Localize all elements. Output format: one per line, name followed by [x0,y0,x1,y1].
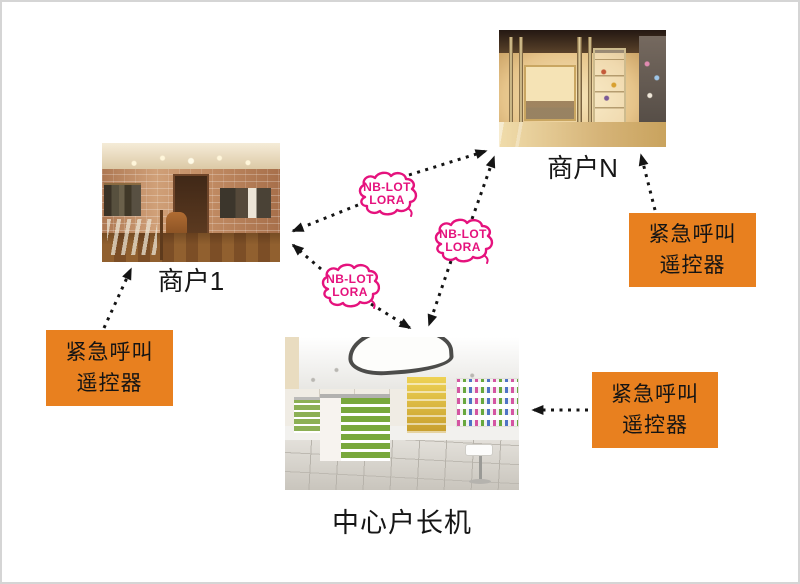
link-cloud1-to-store1 [293,205,358,231]
photo-detail-gold-panel [407,377,447,434]
remote-label-line1: 紧急呼叫 [66,337,154,369]
cloud-tail-icon [409,209,412,216]
cloud-tail-icon [372,301,375,308]
photo-detail-display-case [593,48,626,125]
cloud-text-line2: LORA [445,240,481,254]
cloud-text-line2: LORA [369,193,405,207]
photo-detail-side-wall [639,36,666,130]
storeN-photo [499,30,666,147]
cloud-nb-lot-lora-3: NB-LOT LORA [317,261,383,311]
store1-label: 商户1 [102,261,280,298]
central-label: 中心户长机 [285,501,519,540]
remote-label-line1: 紧急呼叫 [611,379,699,411]
photo-detail-glass-frame [519,37,523,131]
cloud-tail-icon [485,256,488,263]
remote-label-line1: 紧急呼叫 [649,219,737,251]
photo-detail-glass-frame [509,37,513,131]
remote-box-storeN: 紧急呼叫 遥控器 [629,213,756,287]
photo-detail-gondola [294,397,320,434]
photo-detail-clothes-rack [220,188,272,218]
cloud-text-line1: NB-LOT [439,227,487,241]
remote-label-line2: 遥控器 [660,250,726,282]
photo-detail-stool [469,479,491,484]
storeN-label: 商户N [499,148,666,185]
photo-detail-glass-frame [588,37,592,131]
cloud-nb-lot-lora-1: NB-LOT LORA [354,169,420,219]
link-cloud2-to-central [429,261,451,325]
remote-label-line2: 遥控器 [622,410,688,442]
remote-box-store1: 紧急呼叫 遥控器 [46,330,173,406]
central-photo [285,337,519,490]
cloud-text-line1: NB-LOT [363,180,411,194]
photo-detail-stool [479,455,482,481]
photo-detail-glass-frame [577,37,581,131]
link-cloud1-to-storeN [409,151,486,175]
link-cloud2-to-storeN [472,157,494,219]
photo-detail-glossy-floor [499,122,666,147]
photo-detail-shoes [107,219,157,255]
cloud-nb-lot-lora-2: NB-LOT LORA [430,216,496,266]
photo-detail-chair [166,212,187,235]
remote-label-line2: 遥控器 [77,368,143,400]
cloud-text-line2: LORA [332,285,368,299]
photo-detail-product-shelf [456,378,519,427]
photo-detail-back-room [524,65,576,121]
diagram-canvas: 商户1 商户N 中心户长机 紧急呼叫 遥控器 紧急呼叫 遥控器 紧急呼叫 遥控器… [0,0,800,584]
photo-detail-gondola [320,394,390,461]
photo-detail-stool [465,444,493,456]
remote-box-central: 紧急呼叫 遥控器 [592,372,718,448]
cloud-text-line1: NB-LOT [326,272,374,286]
store1-photo [102,143,280,262]
photo-detail-ceiling [102,143,280,172]
